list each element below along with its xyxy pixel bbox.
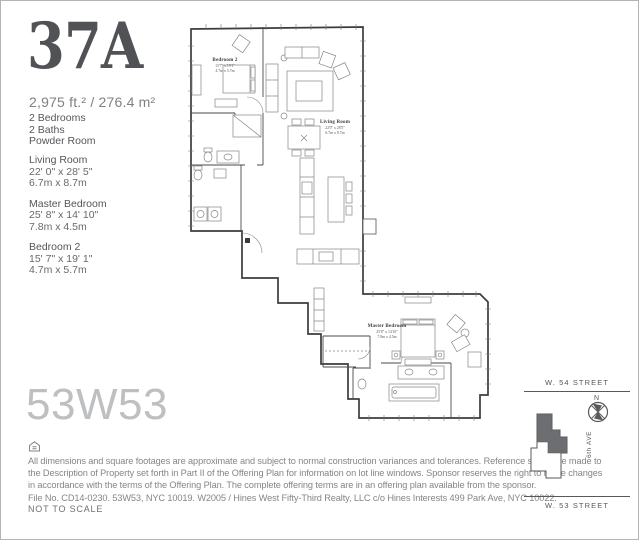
unit-number: 37A: [27, 15, 142, 79]
column: [245, 238, 250, 243]
feature-powder-room: Powder Room: [29, 136, 96, 148]
plan-dim-master-bedroom-metric: 7.8m x 4.5m: [377, 335, 396, 339]
building-logo: 53W53: [26, 383, 168, 427]
room-master-bedroom: Master Bedroom 25' 8" x 14' 10" 7.8m x 4…: [29, 199, 107, 234]
compass-icon: N: [581, 391, 615, 427]
equal-housing-icon: [28, 441, 41, 452]
room-name: Bedroom 2: [29, 242, 107, 254]
floorplan-drawing: Bedroom 2 15'7" x 19'1" 4.7m x 5.7m Livi…: [171, 1, 531, 441]
feature-bedrooms: 2 Bedrooms: [29, 113, 96, 125]
street-label-w54: W. 54 STREET: [522, 378, 632, 387]
room-name: Living Room: [29, 155, 107, 167]
plan-label-bedroom2: Bedroom 2: [212, 58, 237, 63]
plan-dim-bedroom2-imperial: 15'7" x 19'1": [215, 64, 235, 68]
plan-dim-living-room-metric: 6.7m x 8.7m: [325, 131, 344, 135]
room-living-room: Living Room 22' 0" x 28' 5" 6.7m x 8.7m: [29, 155, 107, 190]
compass-north-label: N: [594, 395, 599, 402]
building-footprint-keyplan: [525, 409, 573, 483]
avenue-label: 6th AVE: [586, 428, 593, 458]
unit-area: 2,975 ft.² / 276.4 m²: [29, 94, 155, 110]
plan-label-master-bedroom: Master Bedroom: [368, 324, 407, 329]
plan-dim-living-room-imperial: 22'0" x 28'5": [325, 126, 345, 130]
street-label-w53: W. 53 STREET: [522, 501, 632, 510]
room-metric: 4.7m x 5.7m: [29, 265, 107, 277]
plan-dim-bedroom2-metric: 4.7m x 5.7m: [215, 69, 234, 73]
room-dimension-list: Living Room 22' 0" x 28' 5" 6.7m x 8.7m …: [29, 155, 107, 286]
floorplan-sheet: 37A 2,975 ft.² / 276.4 m² 2 Bedrooms 2 B…: [0, 0, 639, 540]
room-imperial: 25' 8" x 14' 10": [29, 210, 107, 222]
bay-window: [363, 219, 376, 234]
street-line-bottom: [524, 496, 630, 497]
room-bedroom-2: Bedroom 2 15' 7" x 19' 1" 4.7m x 5.7m: [29, 242, 107, 277]
unit-features: 2 Bedrooms 2 Baths Powder Room: [29, 113, 96, 148]
plan-dim-master-bedroom-imperial: 25'8" x 14'10": [376, 330, 398, 334]
room-metric: 7.8m x 4.5m: [29, 222, 107, 234]
not-to-scale-note: NOT TO SCALE: [28, 504, 103, 514]
room-metric: 6.7m x 8.7m: [29, 178, 107, 190]
plan-label-living-room: Living Room: [320, 120, 351, 125]
